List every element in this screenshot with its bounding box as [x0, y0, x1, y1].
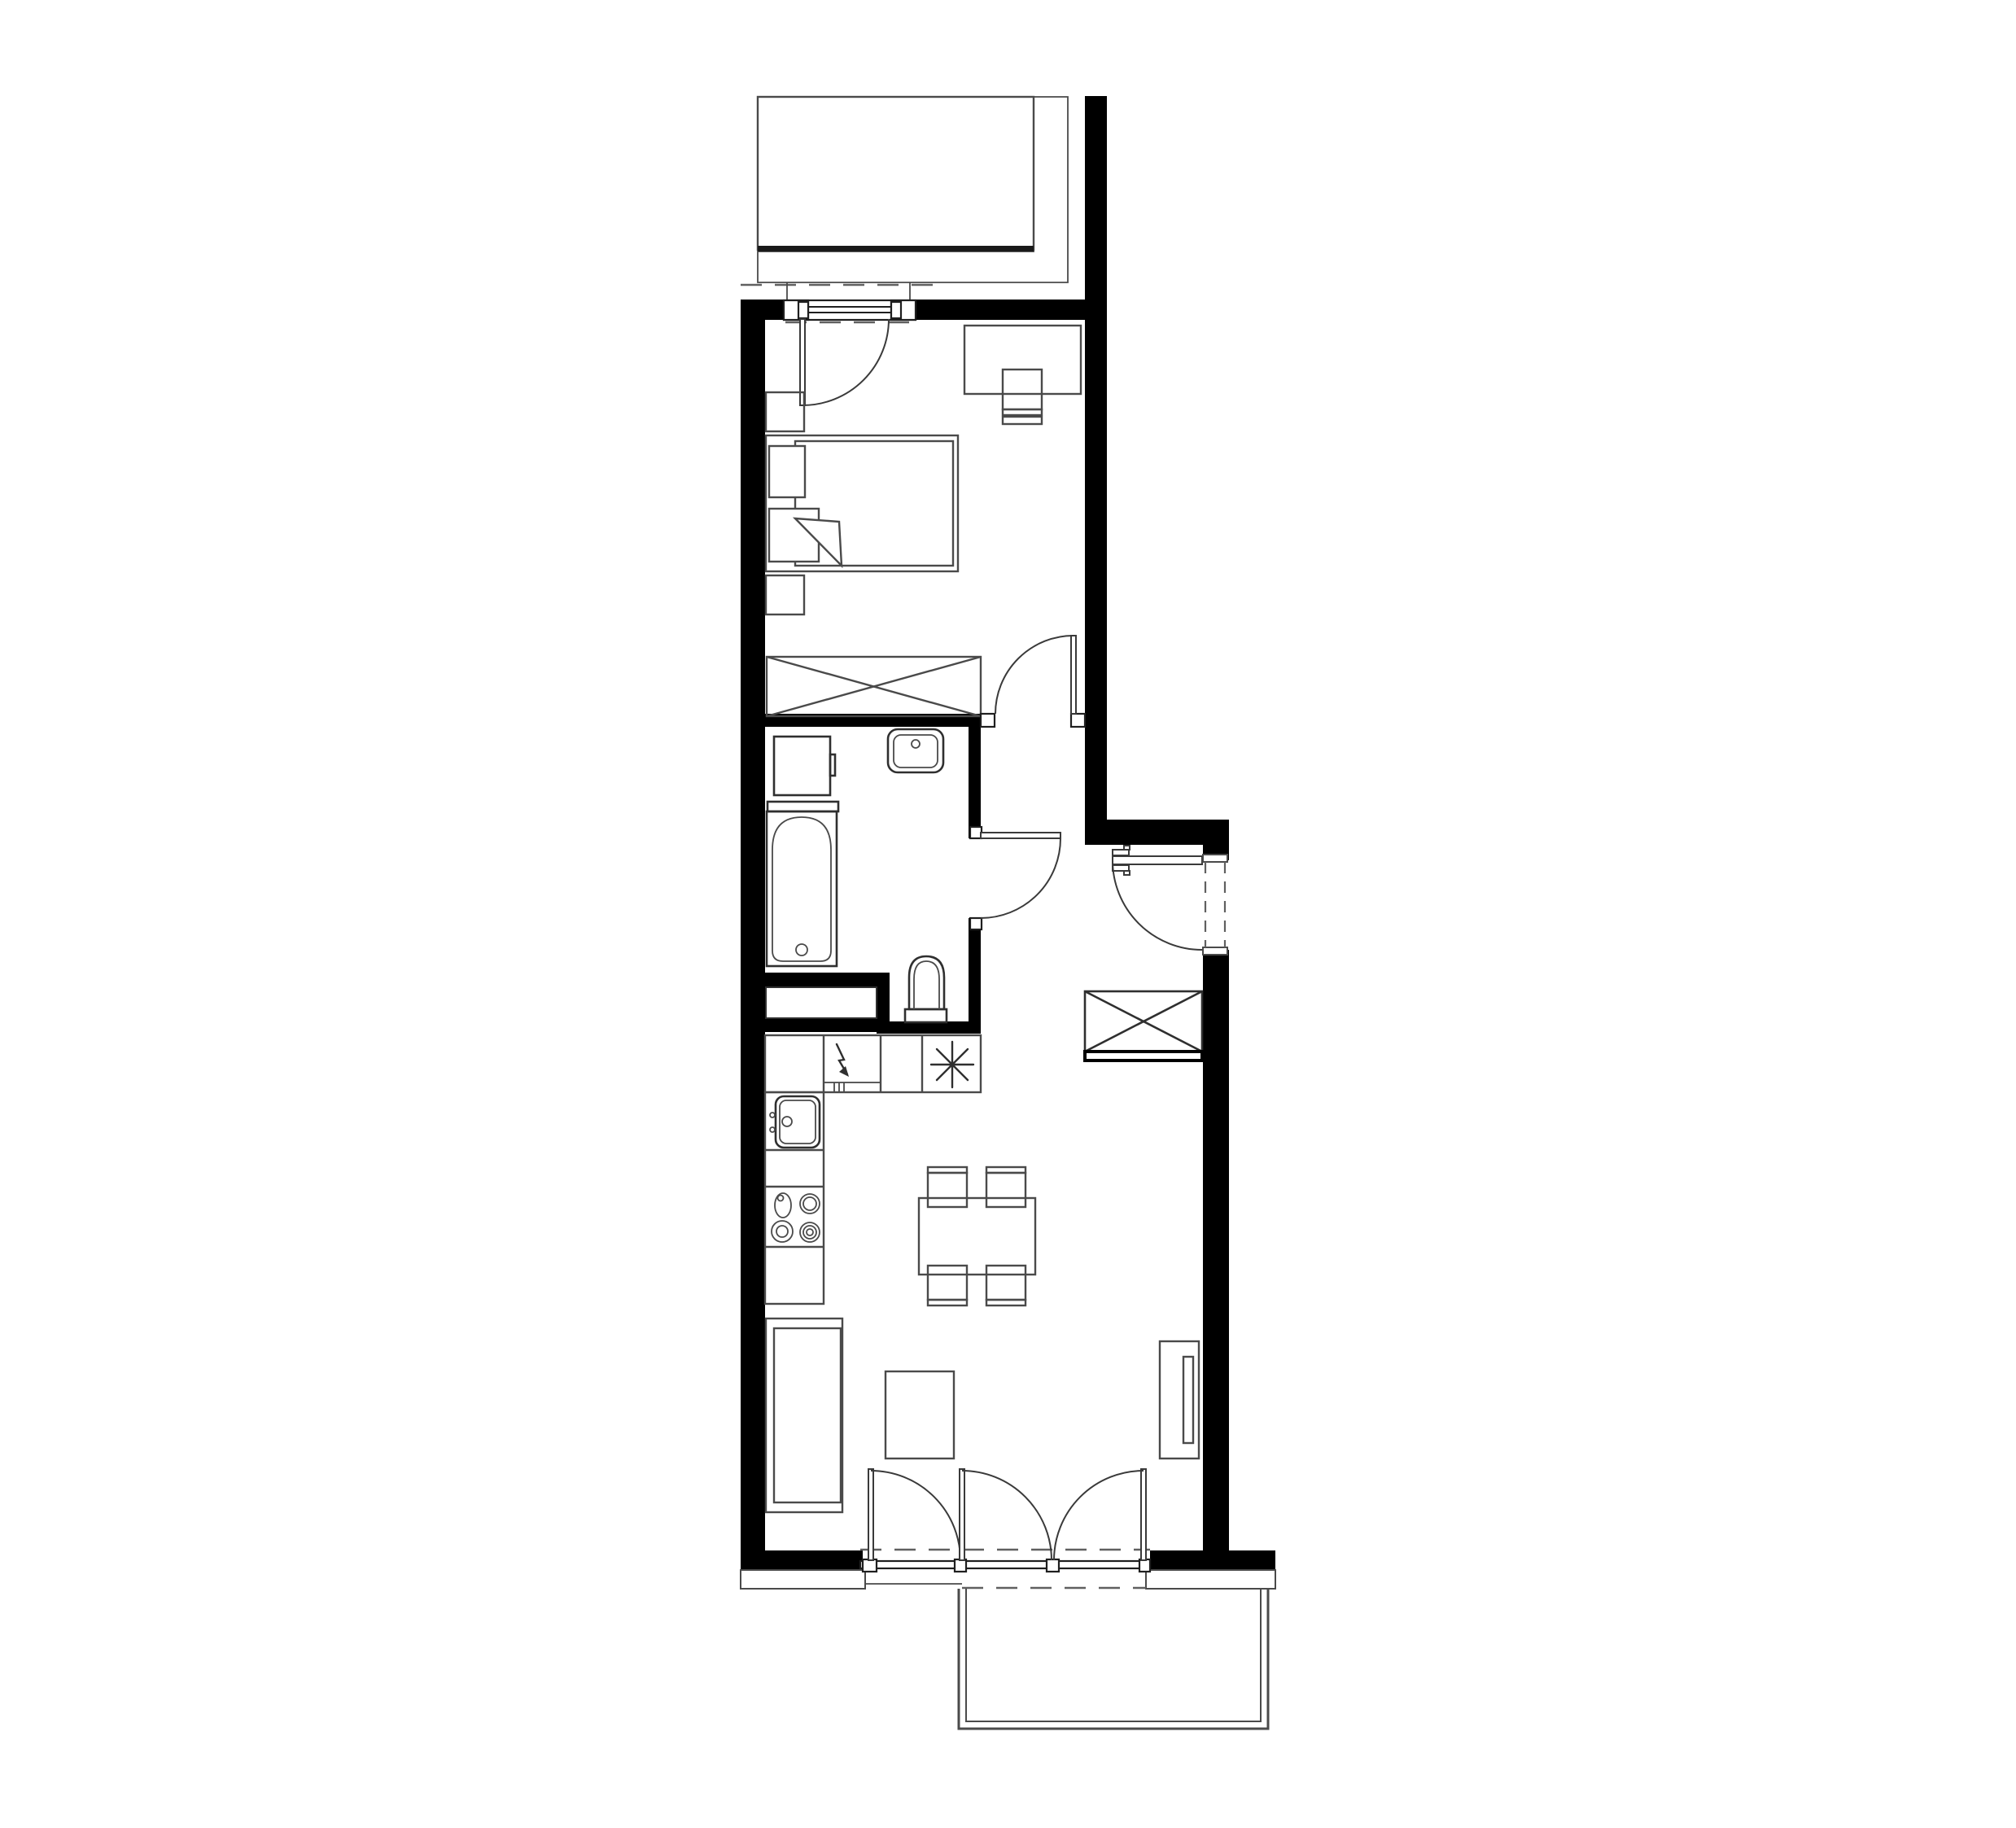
asterisk-icon	[931, 1042, 973, 1087]
triple-door-frame	[860, 1561, 1150, 1568]
entry-door-handle-nub-top	[1124, 846, 1130, 850]
entry-door-leaf	[1113, 856, 1202, 864]
kitchen-sink-drain	[782, 1117, 792, 1126]
wall-hall-top	[1085, 820, 1229, 845]
bedroom-wardrobe	[767, 657, 981, 716]
asterisk-center	[950, 1062, 956, 1068]
living-room	[766, 1167, 1199, 1512]
wall-right-upper	[1085, 96, 1107, 845]
burner-4-inner	[807, 1229, 813, 1235]
bathtub-outer	[767, 811, 837, 966]
nightstand-top	[766, 392, 804, 431]
balcony-door-swing-arc	[802, 319, 889, 405]
balcony-bottom	[959, 1589, 1268, 1729]
appliance-drawer-band	[824, 1082, 881, 1092]
door-leaf-3	[1141, 1469, 1146, 1560]
lightning-arrow-icon	[837, 1044, 849, 1077]
kitchen-tap-dot-2	[770, 1127, 775, 1132]
washbasin-tap	[912, 740, 920, 748]
triple-door-mullion-2	[1047, 1559, 1059, 1572]
triple-door-jamb-right	[1139, 1559, 1150, 1572]
entry-door-handle-top	[1113, 850, 1129, 855]
balcony-platform-edge	[758, 246, 1034, 251]
sofa-seat	[774, 1328, 841, 1502]
bedroom-door-swing-arc	[995, 636, 1074, 714]
wall-bedroom-top-left	[741, 300, 784, 320]
triple-door-mullion-1	[955, 1559, 966, 1572]
toilet-tank	[905, 1009, 947, 1022]
living-room-balcony-door	[860, 1469, 1150, 1588]
balcony-railing-inner	[966, 1589, 1261, 1721]
entry-threshold-bottom	[1203, 947, 1227, 955]
chair-3-seat	[928, 1266, 967, 1300]
door-swing-arc-2	[962, 1471, 1052, 1560]
bedroom-door	[981, 636, 1085, 727]
hall-wardrobe-base-bar	[1085, 1052, 1202, 1061]
triple-door-jamb-left	[863, 1559, 877, 1572]
sofa-outline	[766, 1319, 842, 1512]
bathroom-door-jamb-bottom	[970, 918, 982, 929]
lightning-arrowhead	[839, 1066, 849, 1077]
burner-2-inner	[803, 1197, 816, 1210]
nightstand-bottom	[766, 575, 804, 614]
balcony-platform	[758, 97, 1034, 250]
desk	[964, 326, 1081, 394]
floor-plan-drawing: One-bedroom apartment floor plan	[0, 0, 2016, 1828]
wall-bathroom-right-lower	[969, 918, 981, 1034]
bathroom-door-swing-arc	[981, 838, 1060, 918]
door-leaf-2	[960, 1469, 964, 1560]
balcony-railing-outer	[959, 1589, 1268, 1729]
door-swing-arc-3	[1054, 1471, 1144, 1560]
bathtub-shelf	[767, 802, 838, 811]
desk-chair-back-bar-2	[1003, 417, 1042, 424]
exterior-band-bottom-right	[1146, 1570, 1275, 1589]
exterior-band-bottom-left	[741, 1570, 865, 1589]
wall-bottom-left	[763, 1550, 863, 1570]
balcony-door-jamb-right-inner	[891, 302, 901, 318]
armchair	[886, 1371, 954, 1458]
kitchen	[765, 1035, 981, 1304]
bathroom-door-jamb-top	[970, 827, 982, 838]
kitchen-sink-inner	[780, 1100, 816, 1144]
bedroom-door-jamb-left	[981, 714, 995, 727]
desk-chair-seat	[1003, 370, 1042, 409]
hob-four-burners	[772, 1193, 820, 1242]
bedroom	[766, 326, 1081, 716]
chair-2-seat	[986, 1173, 1025, 1207]
chair-4-backrest	[986, 1300, 1025, 1305]
dining-set	[919, 1167, 1035, 1305]
burner-4-mid	[803, 1226, 816, 1239]
chair-1-seat	[928, 1173, 967, 1207]
chair-4-seat	[986, 1266, 1025, 1300]
entry-door-handle-bottom	[1113, 865, 1129, 871]
burner-3-inner	[776, 1226, 788, 1237]
bathtub-inner	[772, 817, 831, 961]
wall-shaft-south	[763, 1018, 890, 1032]
wall-bathtub-south	[763, 973, 890, 987]
bedroom-door-leaf	[1071, 636, 1076, 714]
toilet	[905, 956, 947, 1022]
wall-bottom-right	[1150, 1550, 1275, 1570]
bathtub-drain	[796, 944, 807, 956]
washing-machine	[774, 737, 830, 795]
kitchen-tap-dot-1	[770, 1113, 775, 1117]
bedroom-door-jamb-right	[1071, 714, 1085, 727]
floor-plan-page: One-bedroom apartment floor plan	[0, 0, 2016, 1828]
kitchen-sink	[770, 1096, 820, 1148]
hall-wardrobe	[1085, 991, 1202, 1061]
tv-screen	[1183, 1357, 1193, 1443]
burner-oval-dot	[778, 1196, 784, 1201]
entry-threshold-top	[1203, 855, 1227, 862]
wall-right-lower	[1203, 950, 1229, 1570]
wall-bedroom-top-right	[916, 300, 1085, 320]
bathroom-door-leaf	[981, 833, 1060, 838]
wall-bathroom-right-upper	[969, 727, 981, 838]
door-leaf-1	[868, 1469, 873, 1560]
burner-3-outer	[772, 1221, 793, 1242]
desk-chair-back-bar-1	[1003, 409, 1042, 415]
balcony-top	[741, 97, 1068, 300]
toilet-bowl-inner	[914, 961, 939, 1009]
balcony-door-jamb-left-inner	[798, 302, 808, 318]
washing-machine-handle	[830, 754, 835, 776]
chair-3-backrest	[928, 1300, 967, 1305]
duct-shaft	[766, 987, 877, 1018]
bed-pillow-1	[769, 446, 805, 497]
dining-table	[919, 1198, 1035, 1275]
wall-left-exterior	[741, 300, 765, 1570]
entry-door-handle-nub-bottom	[1124, 871, 1130, 875]
bedroom-balcony-door	[784, 300, 916, 405]
door-swing-arc-1	[871, 1471, 960, 1560]
